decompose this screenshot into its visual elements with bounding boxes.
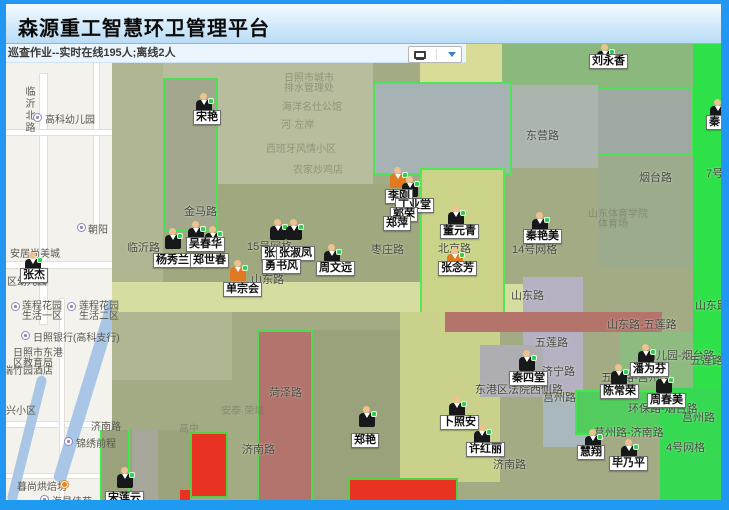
- road-line: [6, 422, 102, 427]
- person-label[interactable]: 宋艳: [193, 110, 221, 125]
- person-icon[interactable]: [611, 364, 627, 386]
- person-icon[interactable]: [165, 228, 181, 250]
- overlay-region: [190, 432, 228, 498]
- window-frame: [0, 0, 729, 4]
- person-icon[interactable]: [270, 219, 286, 241]
- online-badge-icon: [371, 411, 377, 417]
- online-badge-icon: [531, 355, 537, 361]
- overlay-region: [348, 478, 458, 502]
- poi-label: 高科幼儿园: [45, 111, 95, 126]
- grid-label: 4号网格: [666, 439, 705, 455]
- poi-icon: [11, 302, 20, 311]
- person-icon[interactable]: [230, 260, 246, 282]
- online-badge-icon: [298, 224, 304, 230]
- road-label: 山东路: [511, 287, 544, 303]
- monitor-icon[interactable]: [414, 51, 426, 59]
- poi-icon: [60, 480, 69, 489]
- person-label[interactable]: 潘为芬: [630, 362, 669, 377]
- road-label: 济南路: [493, 456, 526, 472]
- online-badge-icon: [486, 429, 492, 435]
- poi-label: 生活二区: [79, 307, 119, 322]
- person-label[interactable]: 周春美: [647, 393, 686, 408]
- person-label[interactable]: 郑世春: [190, 253, 229, 268]
- person-label[interactable]: 杨秀兰: [153, 253, 192, 268]
- road-label: 山东路-五莲路: [607, 316, 677, 332]
- person-label[interactable]: 秦艳美: [523, 229, 562, 244]
- person-label[interactable]: 毕乃平: [609, 456, 648, 471]
- faint-poi-label: 体育场: [598, 215, 628, 230]
- poi-icon: [77, 223, 86, 232]
- person-label[interactable]: 卜照安: [440, 415, 479, 430]
- road-label: 五莲路: [535, 334, 568, 350]
- faint-poi-label: 河·左岸: [281, 116, 314, 131]
- person-label[interactable]: 陈常荣: [600, 384, 639, 399]
- toolbar-divider: [436, 49, 437, 60]
- road-label: 东营路: [526, 127, 559, 143]
- person-label[interactable]: 单宗会: [223, 282, 262, 297]
- app-header: 森源重工智慧环卫管理平台: [0, 4, 729, 44]
- window-frame: [0, 500, 729, 510]
- road-label: 济南路: [242, 441, 275, 457]
- dropdown-arrow-icon[interactable]: [448, 52, 456, 57]
- faint-poi-label: 安泰·荣域: [221, 402, 264, 417]
- poi-label: 朝阳: [88, 221, 108, 236]
- online-badge-icon: [177, 233, 183, 239]
- person-icon[interactable]: [519, 350, 535, 372]
- road-label: 枣庄路: [371, 241, 404, 257]
- overlay-region: [257, 330, 313, 502]
- online-badge-icon: [242, 265, 248, 271]
- poi-label: 日照银行(高科支行): [33, 329, 120, 344]
- online-badge-icon: [623, 369, 629, 375]
- person-icon[interactable]: [359, 406, 375, 428]
- poi-label: 锦绣前程: [76, 435, 116, 450]
- online-badge-icon: [544, 217, 550, 223]
- poi-label: 生活一区: [22, 307, 62, 322]
- person-label[interactable]: 董元青: [440, 224, 479, 239]
- overlay-region: [313, 330, 400, 502]
- road-label: 临沂北路: [21, 86, 36, 134]
- person-label[interactable]: 郑萍: [383, 216, 411, 231]
- person-label[interactable]: 刘永香: [589, 54, 628, 69]
- online-badge-icon: [459, 252, 465, 258]
- app-window: 日照市城市 排水管理处 海洋名仕公馆 河·左岸 西班牙风情小区 农家炒鸡店 山东…: [0, 0, 729, 510]
- person-label[interactable]: 郑艳: [351, 433, 379, 448]
- online-badge-icon: [37, 257, 43, 263]
- person-label[interactable]: 张杰: [20, 268, 48, 283]
- poi-icon: [33, 113, 42, 122]
- person-label[interactable]: 慧翔: [577, 445, 605, 460]
- window-frame: [0, 0, 6, 510]
- online-badge-icon: [414, 181, 420, 187]
- faint-poi-label: 西班牙风情小区: [266, 140, 336, 155]
- map-toolbar: [408, 46, 462, 63]
- window-frame: [721, 0, 729, 510]
- person-icon[interactable]: [286, 219, 302, 241]
- online-badge-icon: [650, 349, 656, 355]
- person-label[interactable]: 秦四堂: [509, 371, 548, 386]
- road-label: 菏泽路: [269, 384, 302, 400]
- faint-poi-label: 排水管理处: [284, 79, 334, 94]
- person-label[interactable]: 许红丽: [466, 442, 505, 457]
- person-label[interactable]: 勇书风: [262, 259, 301, 274]
- online-badge-icon: [597, 434, 603, 440]
- road-label: 金马路: [184, 203, 217, 219]
- poi-icon: [64, 437, 73, 446]
- online-badge-icon: [461, 401, 467, 407]
- road-line: [94, 54, 99, 234]
- online-badge-icon: [668, 377, 674, 383]
- faint-poi-label: 高中: [179, 420, 199, 435]
- road-label: 莒州路: [543, 389, 576, 405]
- overlay-region: [373, 82, 512, 175]
- road-label: 五莲路: [690, 352, 723, 368]
- person-label[interactable]: 周文远: [316, 261, 355, 276]
- online-badge-icon: [129, 472, 135, 478]
- faint-poi-label: 农家炒鸡店: [293, 161, 343, 176]
- online-badge-icon: [460, 210, 466, 216]
- person-label[interactable]: 张念芳: [438, 261, 477, 276]
- poi-label: 兴小区: [6, 402, 36, 417]
- road-label: 莒州路-济南路: [594, 424, 664, 440]
- road-label: 烟台路: [639, 169, 672, 185]
- poi-icon: [67, 302, 76, 311]
- road-label: 莒州路: [682, 409, 715, 425]
- poi-icon: [21, 331, 30, 340]
- person-icon[interactable]: [117, 467, 133, 489]
- status-bar: 巡查作业--实时在线195人;离线2人: [6, 44, 466, 63]
- poi-label: 瑞竹园酒店: [3, 362, 53, 377]
- online-badge-icon: [336, 249, 342, 255]
- person-label[interactable]: 吴春华: [186, 237, 225, 252]
- page-title: 森源重工智慧环卫管理平台: [18, 12, 270, 41]
- road-label: 济南路: [91, 418, 121, 433]
- faint-poi-label: 海洋名仕公馆: [282, 98, 342, 113]
- online-badge-icon: [633, 444, 639, 450]
- online-badge-icon: [208, 98, 214, 104]
- status-text: 巡查作业--实时在线195人;离线2人: [8, 47, 175, 59]
